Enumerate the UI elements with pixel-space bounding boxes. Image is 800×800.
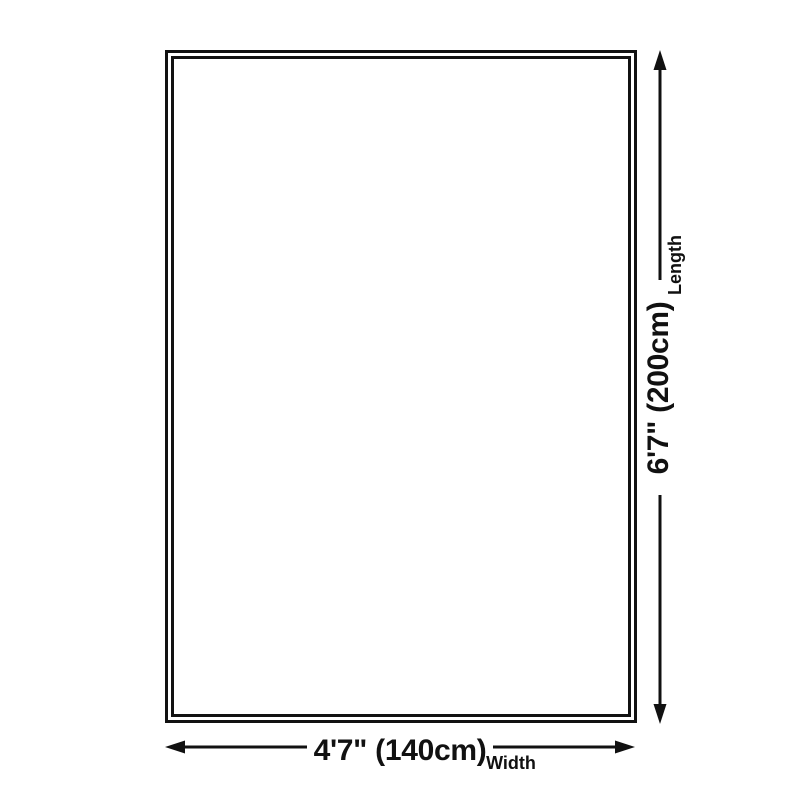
length-arrow-up-arrowhead xyxy=(654,50,667,70)
rug-outline xyxy=(165,50,637,723)
length-value: 6'7" (200cm) xyxy=(644,302,674,475)
width-arrow-right-arrowhead xyxy=(615,741,635,754)
length-label: Length xyxy=(666,235,684,295)
length-arrow-down-arrowhead xyxy=(654,704,667,724)
width-value: 4'7" (140cm) xyxy=(314,736,487,766)
rug-dimension-diagram: 6'7" (200cm) Length 4'7" (140cm) Width xyxy=(0,0,800,800)
width-label: Width xyxy=(486,754,536,772)
width-arrow-left-arrowhead xyxy=(165,741,185,754)
rug-outline-inner-border xyxy=(171,56,631,717)
